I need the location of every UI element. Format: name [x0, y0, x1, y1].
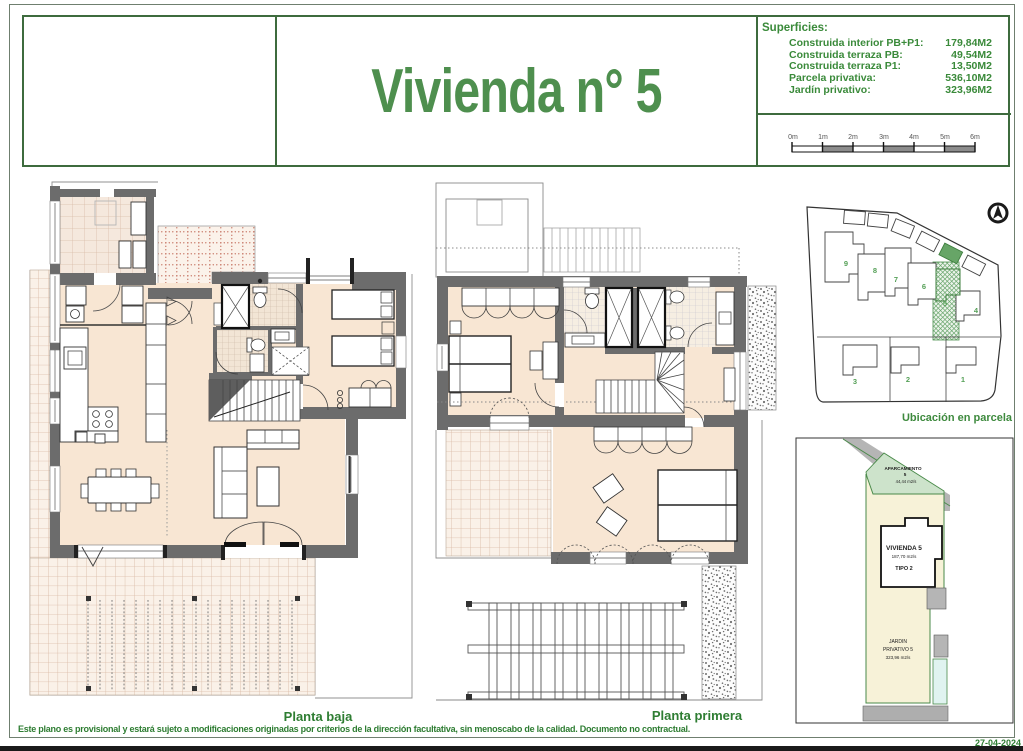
- svg-text:44,44 m2/s: 44,44 m2/s: [896, 479, 917, 484]
- svg-text:5m: 5m: [940, 134, 950, 141]
- svg-text:0m: 0m: [788, 134, 798, 141]
- svg-text:APARCAMIENTO: APARCAMIENTO: [884, 466, 922, 471]
- svg-text:2: 2: [906, 375, 910, 384]
- svg-text:1: 1: [961, 375, 965, 384]
- svg-text:187,70 m2/s: 187,70 m2/s: [892, 554, 918, 559]
- svg-text:8: 8: [873, 266, 877, 275]
- svg-text:7: 7: [894, 275, 898, 284]
- svg-text:TIPO 2: TIPO 2: [895, 566, 912, 572]
- svg-text:4m: 4m: [909, 134, 919, 141]
- svg-text:VIVIENDA 5: VIVIENDA 5: [886, 545, 922, 552]
- svg-text:Ubicación en parcela: Ubicación en parcela: [902, 412, 1013, 424]
- svg-text:323,96 m2/s: 323,96 m2/s: [886, 655, 912, 660]
- svg-text:6: 6: [922, 282, 926, 291]
- svg-text:Planta primera: Planta primera: [652, 708, 743, 723]
- svg-text:5: 5: [904, 472, 907, 477]
- svg-text:JARDIN: JARDIN: [889, 639, 907, 645]
- svg-text:1m: 1m: [818, 134, 828, 141]
- svg-text:6m: 6m: [970, 134, 980, 141]
- svg-text:PRIVATIVO 5: PRIVATIVO 5: [883, 647, 913, 653]
- svg-text:9: 9: [844, 259, 848, 268]
- svg-text:2m: 2m: [848, 134, 858, 141]
- svg-text:Planta baja: Planta baja: [284, 709, 353, 724]
- svg-text:3: 3: [853, 377, 857, 386]
- svg-text:5: 5: [943, 299, 947, 308]
- svg-text:3m: 3m: [879, 134, 889, 141]
